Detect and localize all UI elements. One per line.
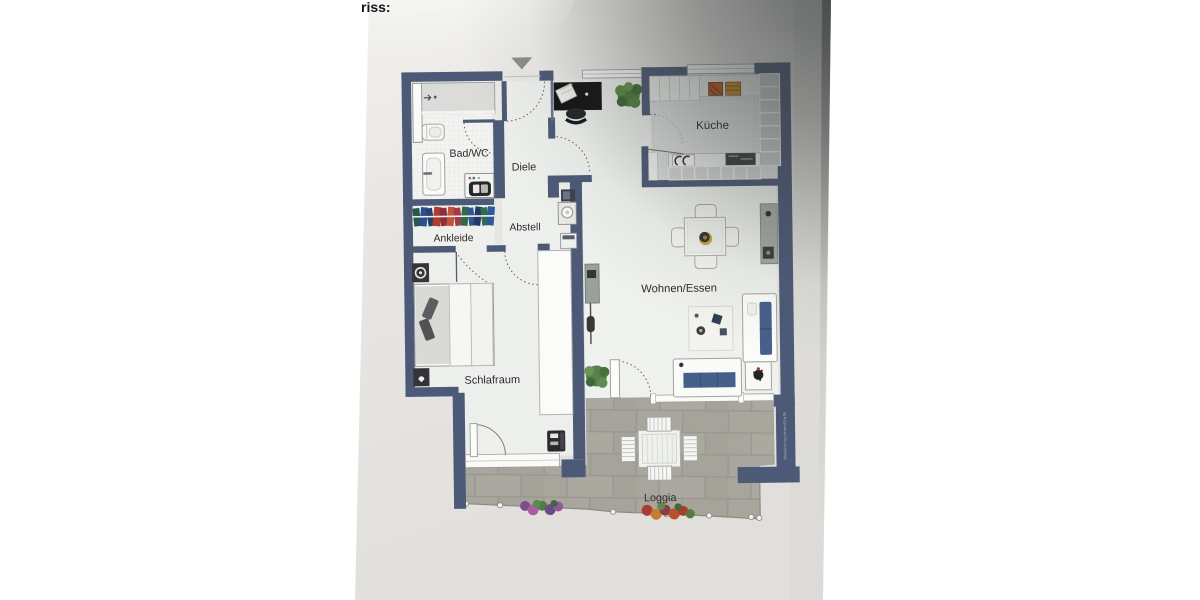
svg-text:Loggia: Loggia bbox=[644, 492, 677, 504]
